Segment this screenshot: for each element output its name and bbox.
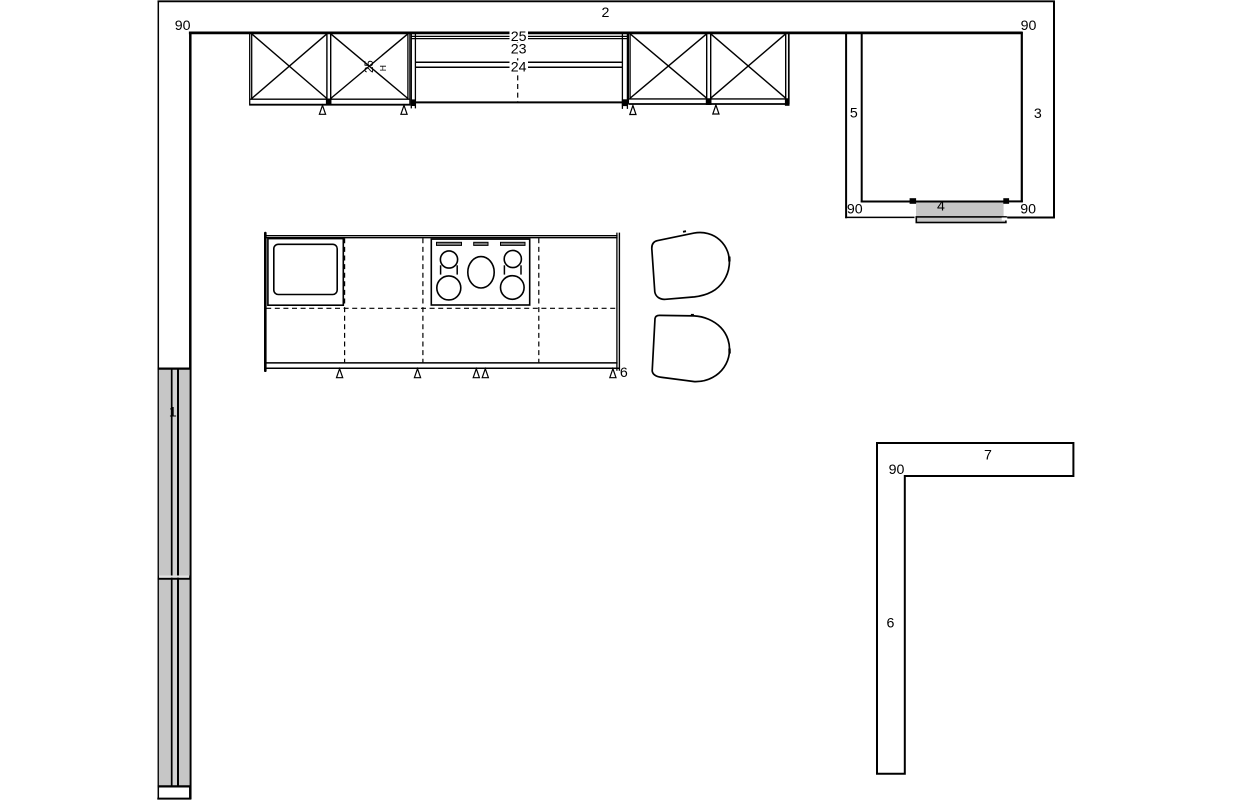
svg-text:3: 3 — [1034, 106, 1042, 122]
svg-text:25: 25 — [364, 60, 376, 73]
svg-text:4: 4 — [937, 198, 945, 214]
svg-text:24: 24 — [511, 59, 527, 75]
svg-text:6: 6 — [620, 365, 628, 381]
svg-text:23: 23 — [511, 41, 527, 57]
svg-text:2: 2 — [602, 5, 610, 21]
svg-text:1: 1 — [169, 404, 177, 420]
svg-text:90: 90 — [889, 462, 905, 478]
svg-text:90: 90 — [1020, 202, 1036, 218]
svg-text:90: 90 — [847, 202, 863, 218]
svg-text:90: 90 — [1021, 18, 1037, 34]
svg-text:90: 90 — [175, 18, 191, 34]
svg-text:6: 6 — [886, 615, 894, 631]
svg-text:7: 7 — [984, 448, 992, 464]
svg-text:H: H — [378, 65, 388, 71]
svg-text:5: 5 — [850, 105, 858, 121]
